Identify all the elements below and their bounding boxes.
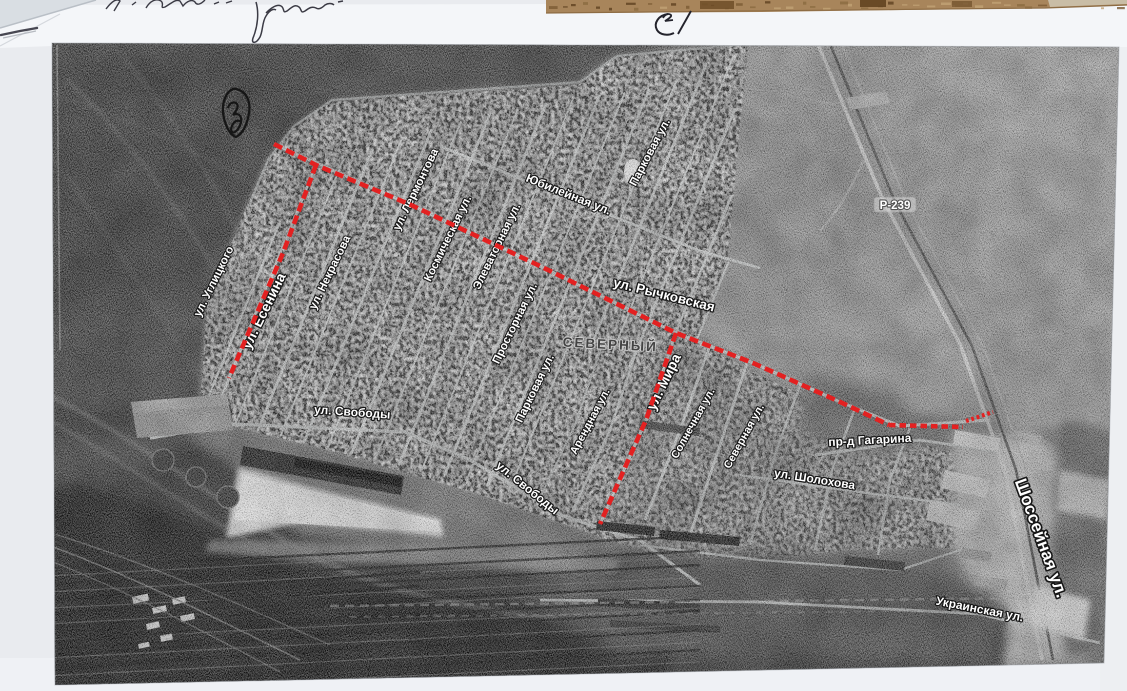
svg-text:Р-239: Р-239 bbox=[880, 200, 911, 212]
